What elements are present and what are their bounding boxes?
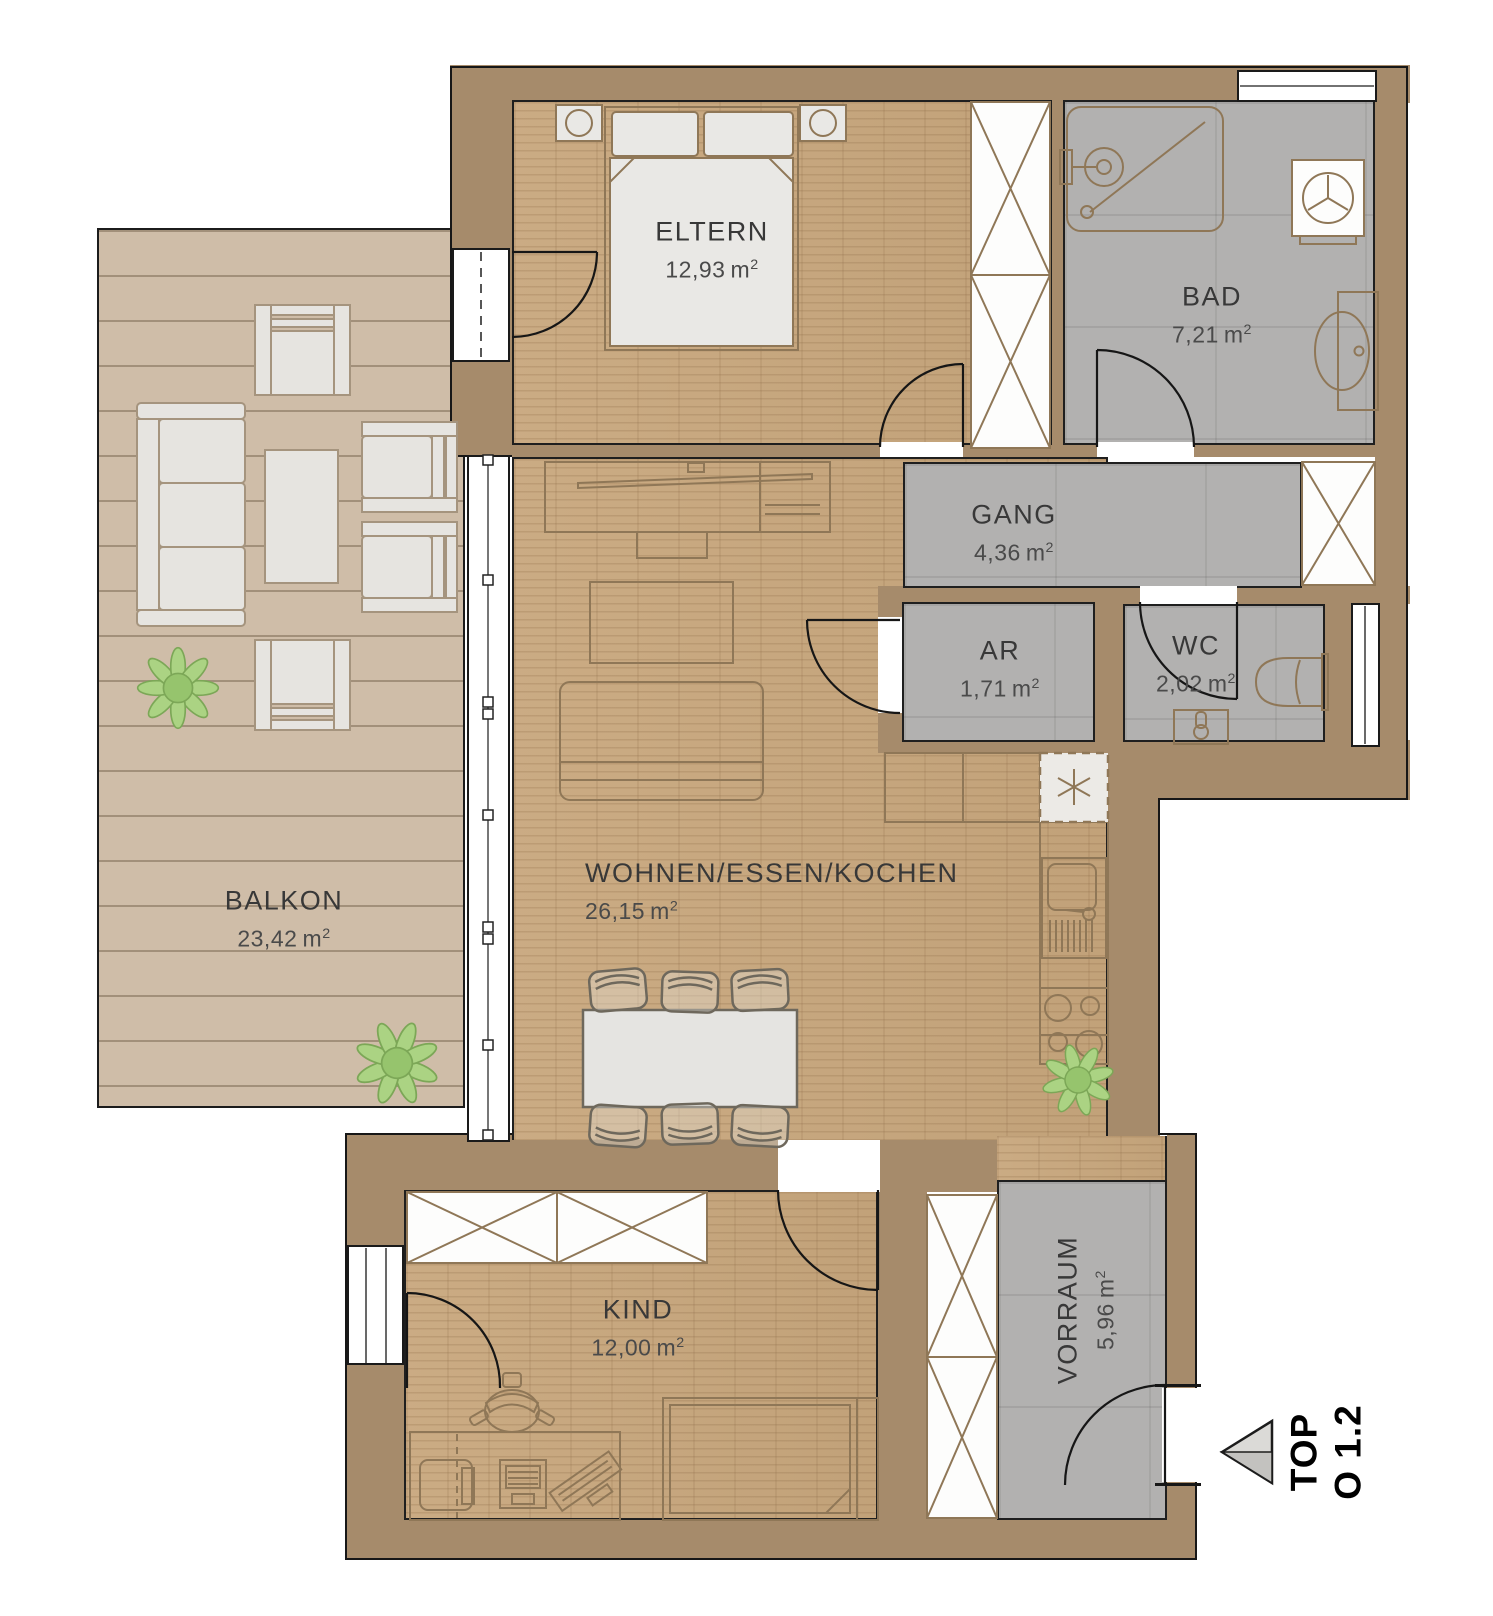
outline-line — [1406, 66, 1408, 800]
outline-line — [1158, 798, 1160, 1135]
room-area: 12,93 m2 — [655, 257, 769, 284]
room-floor-gang — [903, 462, 1302, 588]
room-area: 5,96 m2 — [1093, 1236, 1120, 1385]
window-wc — [1351, 603, 1380, 747]
room-name: VORRAUM — [1053, 1236, 1084, 1385]
wall-segment — [878, 1140, 927, 1520]
wardrobe-gang — [1302, 462, 1375, 585]
room-label-kind: KIND 12,00 m2 — [591, 1295, 684, 1362]
outline-line — [345, 1558, 1197, 1560]
outline-line — [1195, 1133, 1197, 1560]
room-area: 23,42 m2 — [225, 926, 344, 953]
entrance-arrow-icon — [1222, 1421, 1272, 1483]
wall-segment — [1167, 1133, 1197, 1560]
unit-label-line2: O 1.2 — [1327, 1404, 1371, 1500]
entrance-threshold — [1155, 1483, 1201, 1486]
room-label-bad: BAD 7,21 m2 — [1172, 282, 1252, 349]
room-area: 2,02 m2 — [1156, 671, 1236, 698]
room-name: BAD — [1172, 282, 1252, 313]
unit-label: TOP O 1.2 — [1283, 1404, 1372, 1500]
room-name: KIND — [591, 1295, 684, 1326]
room-label-eltern: ELTERN 12,93 m2 — [655, 217, 769, 284]
room-area: 1,71 m2 — [960, 676, 1040, 703]
room-label-wohnen: WOHNEN/ESSEN/KOCHEN 26,15 m2 — [585, 858, 959, 925]
room-label-ar: AR 1,71 m2 — [960, 636, 1040, 703]
room-label-vorraum: VORRAUM 5,96 m2 — [1053, 1236, 1120, 1385]
room-name: BALKON — [225, 886, 344, 917]
door-opening-wc — [1140, 586, 1237, 604]
room-area: 4,36 m2 — [971, 540, 1057, 567]
room-area: 26,15 m2 — [585, 898, 959, 925]
wardrobe-vorraum — [927, 1195, 997, 1518]
room-label-gang: GANG 4,36 m2 — [971, 500, 1057, 567]
room-label-wc: WC 2,02 m2 — [1156, 631, 1236, 698]
balcony-deck — [97, 228, 465, 1108]
floor-patch — [997, 1136, 1167, 1180]
room-floor-bad — [1063, 100, 1375, 445]
unit-label-line1: TOP — [1283, 1404, 1327, 1500]
wall-segment — [345, 1518, 1197, 1560]
wall-segment — [1108, 800, 1160, 1142]
door-opening-eltern — [880, 442, 963, 457]
window-bad — [1237, 70, 1377, 102]
balcony-door-eltern — [452, 248, 510, 362]
wall-segment — [512, 1140, 778, 1192]
room-name: WC — [1156, 631, 1236, 662]
room-area: 12,00 m2 — [591, 1335, 684, 1362]
room-name: WOHNEN/ESSEN/KOCHEN — [585, 858, 959, 889]
room-floor-eltern — [512, 100, 1052, 445]
door-opening-kind — [778, 1140, 880, 1192]
door-opening-ar — [878, 617, 902, 713]
outline-line — [450, 66, 1408, 68]
wall-segment — [1095, 586, 1123, 745]
outline-line — [1158, 1133, 1197, 1135]
door-opening-entrance — [1162, 1388, 1199, 1482]
outline-line — [1158, 798, 1408, 800]
room-label-balkon: BALKON 23,42 m2 — [225, 886, 344, 953]
room-name: GANG — [971, 500, 1057, 531]
room-area: 7,21 m2 — [1172, 322, 1252, 349]
window-kind — [347, 1245, 404, 1365]
room-name: ELTERN — [655, 217, 769, 248]
wall-segment — [1108, 740, 1410, 800]
door-opening-bad — [1097, 442, 1194, 457]
floor-plan: ELTERN 12,93 m2 BAD 7,21 m2 GANG 4,36 m2… — [0, 0, 1493, 1616]
entrance-threshold — [1155, 1384, 1201, 1387]
glazing-wohnen — [467, 455, 510, 1142]
room-name: AR — [960, 636, 1040, 667]
